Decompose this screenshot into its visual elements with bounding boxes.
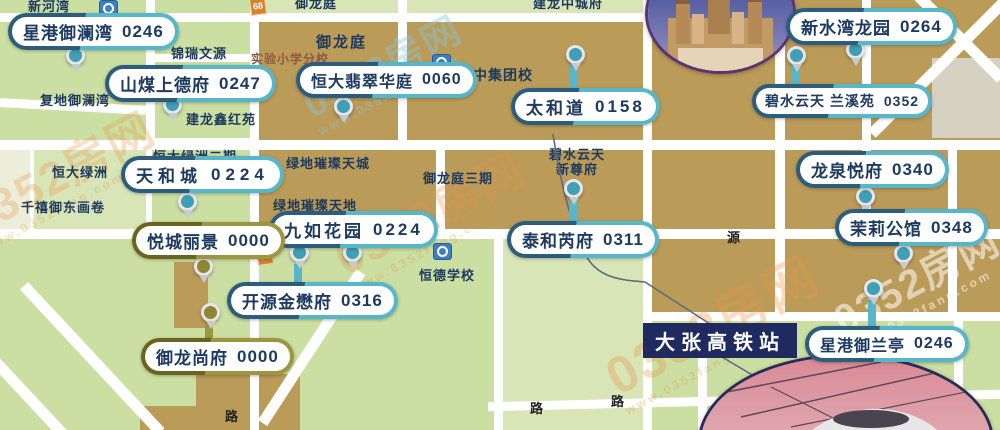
map-pin[interactable] <box>864 279 883 298</box>
listing-marker-taihedao[interactable]: 太和道0158 <box>511 88 660 125</box>
map-pin[interactable] <box>194 257 213 276</box>
map-block <box>0 146 30 232</box>
road <box>643 0 652 318</box>
station-label: 大张高铁站 <box>643 323 797 358</box>
map-pin[interactable] <box>566 45 585 64</box>
road-name-char: 源 <box>727 227 740 246</box>
listing-marker-hengda-feicui-huating[interactable]: 恒大翡翠华庭0060 <box>296 62 477 98</box>
place-label: 绿地璀璨天城 <box>286 153 370 172</box>
map-pin[interactable] <box>856 187 875 206</box>
place-label: 建龙鑫红苑 <box>186 109 256 128</box>
place-label: 复地御澜湾 <box>40 90 110 109</box>
route-68-badge: 68 <box>249 0 267 16</box>
map-pin[interactable] <box>178 192 197 211</box>
listing-marker-xinggang-yulanwan[interactable]: 星港御澜湾0246 <box>8 13 179 50</box>
place-label: 新尊府 <box>556 159 598 178</box>
map-pin[interactable] <box>564 179 583 198</box>
school-icon <box>433 243 452 260</box>
listing-marker-moli-gongguan[interactable]: 茉莉公馆0348 <box>835 209 988 246</box>
place-label: 恒大绿洲 <box>52 162 108 181</box>
road <box>494 238 503 430</box>
road-name-char: 路 <box>225 406 238 425</box>
place-label: 恒德学校 <box>419 265 475 284</box>
map-pin[interactable] <box>334 97 353 116</box>
listing-marker-tianhecheng[interactable]: 天和城0224 <box>121 156 284 193</box>
listing-marker-taihe-ruifu[interactable]: 泰和芮府0311 <box>507 221 659 258</box>
place-label: 千禧御东画卷 <box>21 197 105 216</box>
map-pin[interactable] <box>201 303 220 322</box>
road-name-char: 路 <box>530 398 543 417</box>
road-name-char: 路 <box>611 391 624 410</box>
map-block <box>444 150 643 229</box>
place-label: 御龙庭三期 <box>423 168 493 187</box>
listing-marker-yuecheng-lijing[interactable]: 悦城丽景0000 <box>132 222 285 259</box>
listing-marker-jiuru-huayuan[interactable]: 九如花园0224 <box>269 211 438 248</box>
listing-marker-xinshuiwan-longyuan[interactable]: 新水湾龙园0264 <box>786 8 957 45</box>
map-pin[interactable] <box>894 244 913 263</box>
listing-marker-longquan-yuefu[interactable]: 龙泉悦府0340 <box>796 151 949 188</box>
listing-marker-bishuiyuntian-lanxiyuan[interactable]: 碧水云天 兰溪苑0352 <box>752 84 932 118</box>
real-estate-map: 0352房网www.0352fang.com 0352房网www.0352fan… <box>0 0 1000 430</box>
place-label: 建龙中城府 <box>533 0 603 12</box>
listing-marker-kaiyuan-jinmaofu[interactable]: 开源金懋府0316 <box>227 282 398 319</box>
place-label: 御龙庭 <box>316 31 367 52</box>
listing-marker-yulong-shangfu[interactable]: 御龙尚府0000 <box>141 338 294 375</box>
road <box>0 140 1000 150</box>
place-label: 锦瑞文源 <box>171 43 227 62</box>
listing-marker-shanmei-shangdefu[interactable]: 山煤上德府0247 <box>105 65 276 102</box>
listing-marker-xinggang-yulanting[interactable]: 星港御兰亭0246 <box>805 326 969 362</box>
place-label: 御龙庭 <box>295 0 337 12</box>
map-pin[interactable] <box>787 46 806 65</box>
